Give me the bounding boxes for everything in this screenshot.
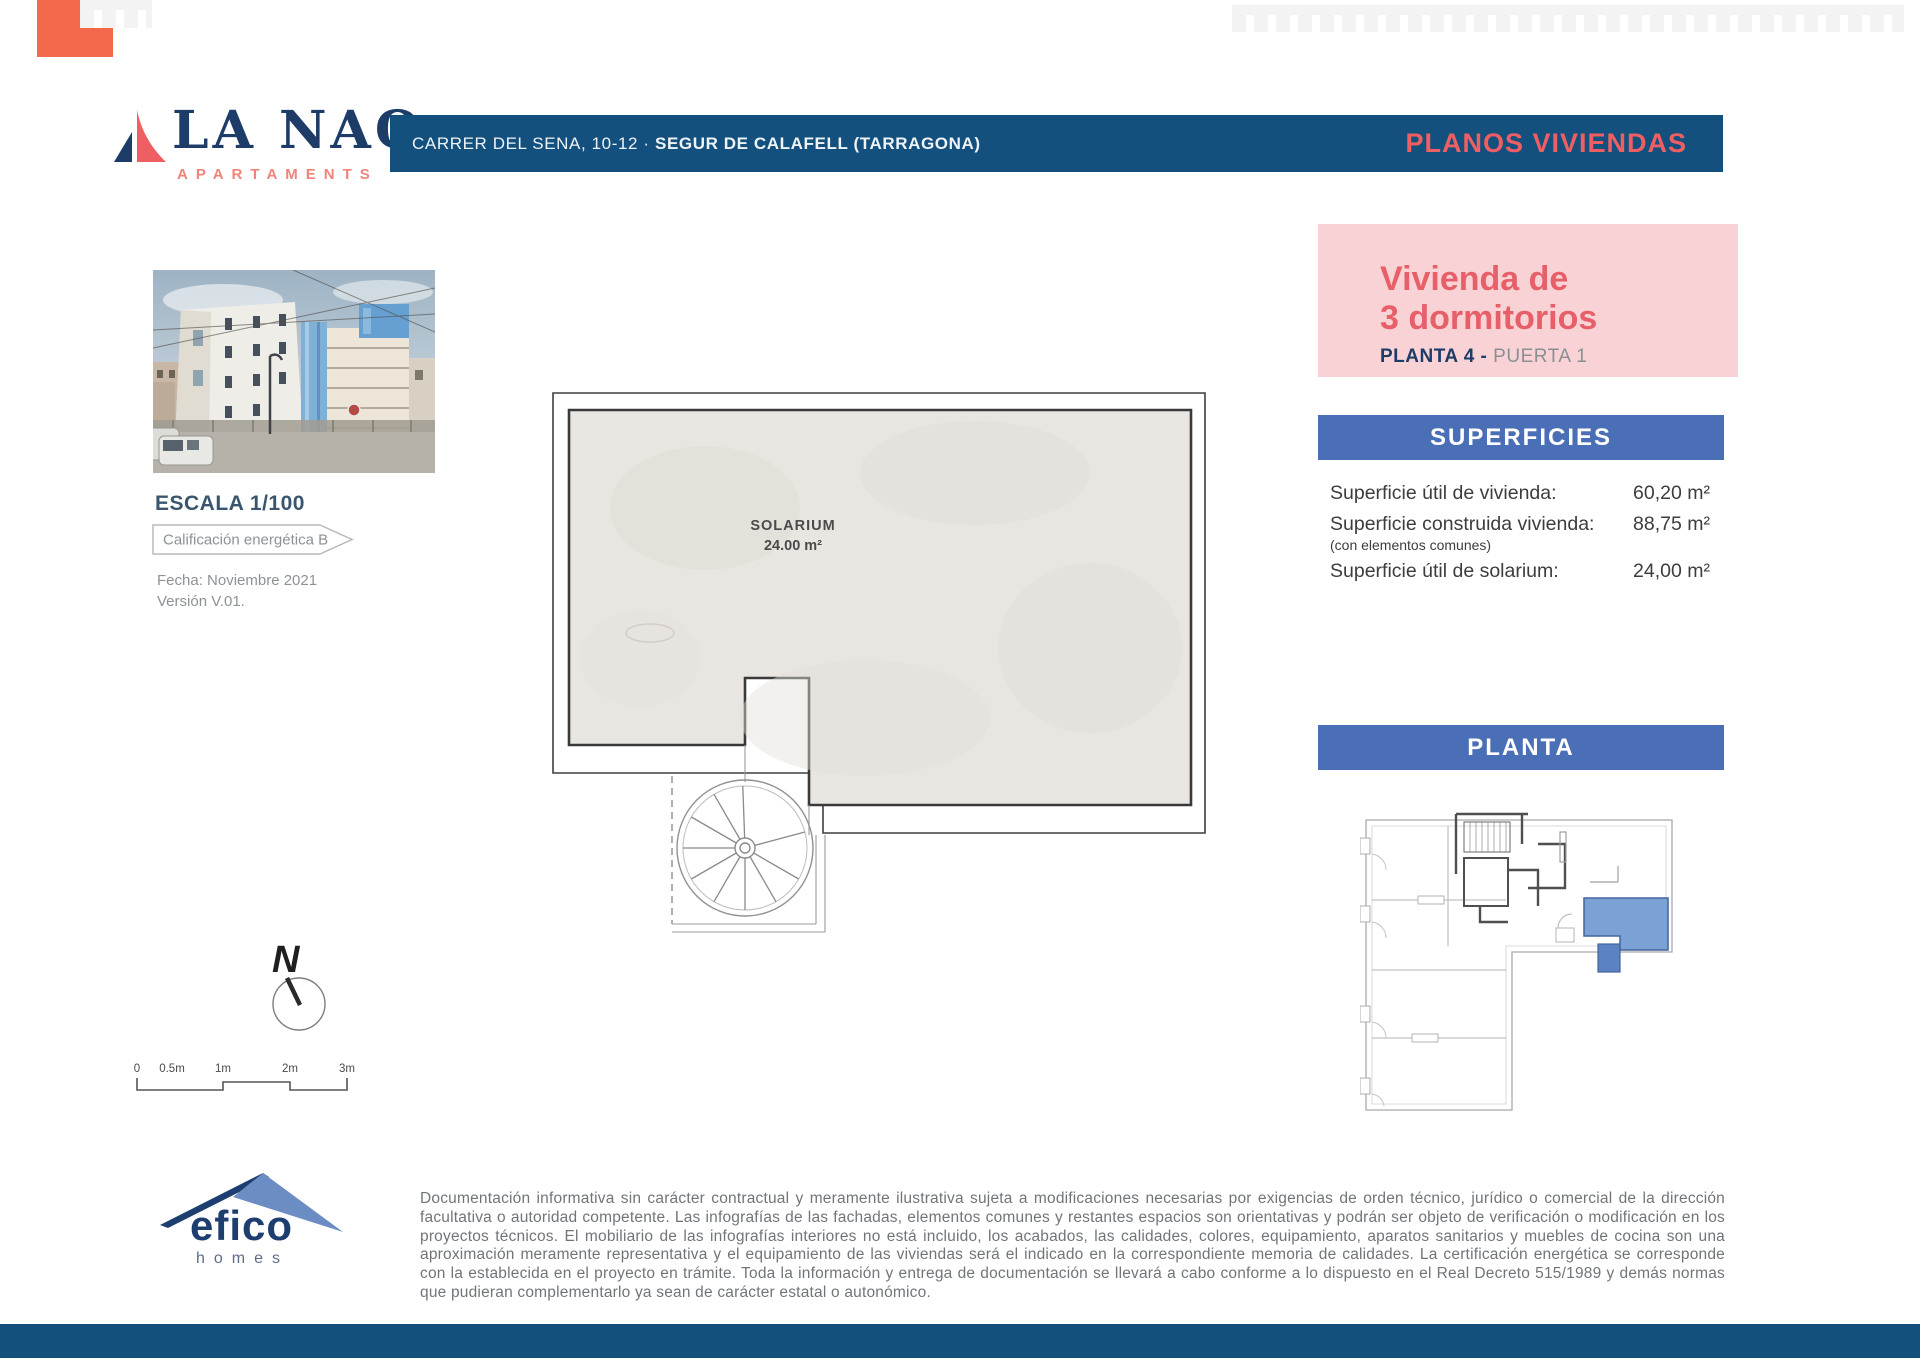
room-area-label: 24.00 m² xyxy=(764,538,822,554)
table-row: Superficie útil de vivienda: 60,20 m² xyxy=(1330,482,1730,505)
header-bar: CARRER DEL SENA, 10-12 · SEGUR DE CALAFE… xyxy=(390,115,1723,172)
date-label: Fecha: Noviembre 2021 xyxy=(157,570,317,591)
surface-label: Superficie útil de solarium: xyxy=(1330,560,1559,582)
address-street: CARRER DEL SENA, 10-12 xyxy=(412,134,638,153)
scale-tick-label: 0 xyxy=(134,1063,140,1075)
legal-disclaimer: Documentación informativa sin carácter c… xyxy=(420,1190,1725,1303)
north-compass-icon: N xyxy=(252,930,352,1045)
sail-logo-icon xyxy=(110,106,168,164)
table-row: Superficie construida vivienda: (con ele… xyxy=(1330,513,1730,553)
comb-pattern-right xyxy=(1232,5,1904,32)
building-photo xyxy=(153,270,435,473)
scale-label: ESCALA 1/100 xyxy=(155,492,305,516)
version-label: Versión V.01. xyxy=(157,591,317,612)
brand-name: LA NAO xyxy=(172,100,424,161)
footer-bar xyxy=(0,1324,1920,1358)
surface-value: 60,20 m² xyxy=(1633,482,1710,505)
plan-sheet: LA NAO APARTAMENTS CARRER DEL SENA, 10-1… xyxy=(0,0,1920,1358)
unit-card: Vivienda de 3 dormitorios PLANTA 4 - PUE… xyxy=(1318,224,1738,377)
date-version-block: Fecha: Noviembre 2021 Versión V.01. xyxy=(157,570,317,612)
unit-door-label: PUERTA 1 xyxy=(1493,346,1587,367)
surface-label: Superficie construida vivienda: xyxy=(1330,513,1594,535)
address-separator: · xyxy=(643,134,649,153)
header-right-title: PLANOS VIVIENDAS xyxy=(1405,128,1687,159)
unit-floor-label: PLANTA 4 - xyxy=(1380,346,1487,367)
energy-rating-tag: Calificación energética B xyxy=(152,524,357,555)
unit-title-line1: Vivienda de xyxy=(1380,260,1597,299)
unit-title-line2: 3 dormitorios xyxy=(1380,299,1597,338)
energy-rating-label: Calificación energética B xyxy=(163,532,328,549)
header-address: CARRER DEL SENA, 10-12 · SEGUR DE CALAFE… xyxy=(412,134,981,154)
brand-subtitle: APARTAMENTS xyxy=(177,166,378,183)
spiral-staircase xyxy=(677,780,813,916)
surface-label: Superficie útil de vivienda: xyxy=(1330,482,1557,504)
scale-bar: 0 0.5m 1m 2m 3m xyxy=(128,1058,378,1103)
address-city: SEGUR DE CALAFELL (TARRAGONA) xyxy=(655,134,981,153)
efico-logo-sub: homes xyxy=(196,1250,289,1268)
key-plan xyxy=(1360,810,1685,1120)
planta-header: PLANTA xyxy=(1318,725,1724,770)
surface-value: 24,00 m² xyxy=(1633,560,1710,583)
solarium-floorplan: SOLARIUM 24.00 m² xyxy=(545,378,1215,978)
unit-title: Vivienda de 3 dormitorios xyxy=(1380,260,1597,338)
surface-note: (con elementos comunes) xyxy=(1330,537,1730,553)
scale-tick-label: 1m xyxy=(215,1063,231,1075)
room-name-label: SOLARIUM xyxy=(750,518,835,534)
scale-tick-label: 3m xyxy=(339,1063,355,1075)
superficies-header: SUPERFICIES xyxy=(1318,415,1724,460)
north-label: N xyxy=(272,939,301,981)
surface-value: 88,75 m² xyxy=(1633,513,1710,536)
scale-tick-label: 0.5m xyxy=(159,1063,185,1075)
scale-tick-label: 2m xyxy=(282,1063,298,1075)
superficies-table: Superficie útil de vivienda: 60,20 m² Su… xyxy=(1330,470,1730,600)
comb-pattern-left xyxy=(80,0,152,28)
efico-logo-name: efico xyxy=(190,1202,293,1250)
table-row: Superficie útil de solarium: 24,00 m² xyxy=(1330,560,1730,583)
unit-location: PLANTA 4 - PUERTA 1 xyxy=(1380,346,1587,368)
